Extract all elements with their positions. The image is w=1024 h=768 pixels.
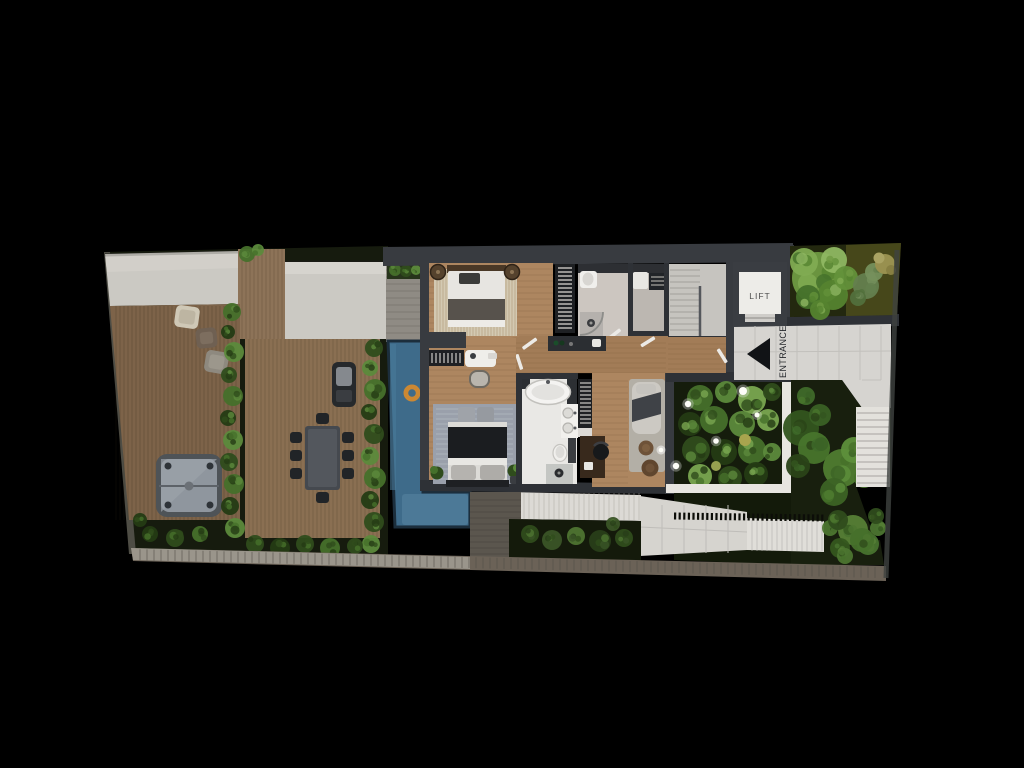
svg-text:ENTRANCE: ENTRANCE	[778, 325, 788, 378]
svg-text:LIFT: LIFT	[749, 291, 770, 301]
